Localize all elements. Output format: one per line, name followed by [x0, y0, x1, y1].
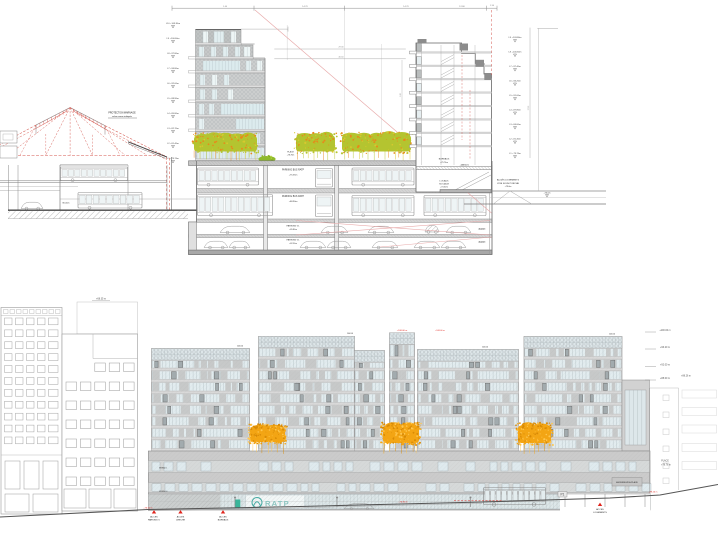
- svg-text:+78.76m: +78.76m: [287, 154, 295, 156]
- svg-text:+88.00 m: +88.00 m: [660, 377, 670, 380]
- svg-text:L8 +97.80m: L8 +97.80m: [167, 53, 179, 55]
- svg-text:2.60: 2.60: [400, 93, 402, 97]
- svg-text:+96.20 m: +96.20 m: [660, 346, 670, 349]
- svg-text:L8 +100.60m: L8 +100.60m: [509, 52, 522, 54]
- svg-text:VOIE SOUS PORCHE: VOIE SOUS PORCHE: [497, 183, 520, 185]
- svg-text:L1 +79.76m: L1 +79.76m: [509, 153, 521, 155]
- svg-text:L7 +97.40m: L7 +97.40m: [509, 66, 521, 68]
- svg-text:P1: P1: [561, 493, 565, 497]
- svg-text:L6 +94.20m: L6 +94.20m: [509, 81, 521, 83]
- svg-text:104.50: 104.50: [482, 347, 488, 349]
- svg-text:ACCES: ACCES: [177, 516, 185, 519]
- svg-text:14.70: 14.70: [302, 6, 308, 8]
- svg-text:selon norme indiquée: selon norme indiquée: [112, 115, 133, 118]
- svg-text:+92.00 m: +92.00 m: [660, 364, 670, 367]
- svg-text:PLACE: PLACE: [287, 151, 294, 154]
- svg-text:L2 +81.40m: L2 +81.40m: [167, 143, 179, 145]
- svg-text:LOCAUX: LOCAUX: [440, 180, 450, 183]
- svg-text:+73.0m: +73.0m: [505, 186, 512, 188]
- svg-text:PARKING BUS RATP: PARKING BUS RATP: [282, 195, 305, 198]
- svg-text:L2 +81.40m: L2 +81.40m: [509, 139, 521, 141]
- svg-text:L3 +82.70m: L3 +82.70m: [167, 128, 179, 130]
- svg-text:40.50: 40.50: [338, 56, 344, 58]
- svg-text:PLACE: PLACE: [661, 460, 669, 463]
- svg-text:80.00m: 80.00m: [63, 203, 70, 205]
- svg-text:PARKING V.: PARKING V.: [148, 519, 161, 522]
- svg-text:CRECHE: CRECHE: [176, 520, 186, 522]
- svg-text:+79.76m: +79.76m: [440, 162, 448, 164]
- svg-text:29.30: 29.30: [338, 47, 344, 49]
- svg-text:+88.26 m: +88.26 m: [681, 376, 691, 378]
- svg-text:12.80: 12.80: [459, 6, 465, 8]
- svg-text:L4 +87.80m: L4 +87.80m: [509, 110, 521, 112]
- svg-text:PROTECTION MARNAGE: PROTECTION MARNAGE: [108, 112, 136, 115]
- svg-text:ACCES: ACCES: [596, 508, 604, 511]
- svg-text:+68.35 m: +68.35 m: [96, 298, 106, 301]
- svg-text:PARKING BUS RATP: PARKING BUS RATP: [282, 169, 305, 172]
- svg-text:+73.30m: +73.30m: [440, 187, 448, 189]
- svg-text:L5 +88.90m: L5 +88.90m: [167, 98, 179, 100]
- svg-text:PARKING VL: PARKING VL: [287, 239, 301, 242]
- svg-text:abattre: abattre: [479, 228, 487, 231]
- svg-text:14.70: 14.70: [403, 6, 409, 8]
- svg-text:L1 +79.76m: L1 +79.76m: [167, 158, 179, 160]
- svg-text:LOGEMENTS: LOGEMENTS: [593, 512, 607, 514]
- svg-text:ASCENSEUR À PLACE: ASCENSEUR À PLACE: [616, 481, 638, 484]
- svg-text:+76.50 m: +76.50 m: [143, 507, 152, 509]
- svg-text:+108.00 m: +108.00 m: [397, 330, 408, 332]
- svg-text:+62.50m: +62.50m: [289, 243, 297, 245]
- svg-text:ACCES: ACCES: [219, 516, 227, 519]
- svg-text:+78.26 m: +78.26 m: [649, 492, 658, 494]
- svg-text:+78.76 m: +78.76 m: [661, 465, 671, 467]
- svg-text:NIVEAU 0: NIVEAU 0: [159, 490, 167, 493]
- svg-text:L7 +94.80m: L7 +94.80m: [167, 68, 179, 70]
- svg-text:ACCÈS LOGEMENTS: ACCÈS LOGEMENTS: [497, 179, 519, 182]
- svg-text:+100.00 m: +100.00 m: [659, 329, 670, 332]
- svg-text:104.50: 104.50: [237, 346, 243, 348]
- svg-text:BUREAUX: BUREAUX: [218, 519, 229, 522]
- svg-text:+73.0m: +73.0m: [544, 193, 551, 195]
- svg-text:L5 +91.00m: L5 +91.00m: [509, 95, 521, 97]
- svg-text:SOCIAUX: SOCIAUX: [439, 183, 449, 186]
- svg-text:NIVEAU 1: NIVEAU 1: [159, 467, 167, 470]
- svg-text:L3 +84.60m: L3 +84.60m: [509, 124, 521, 126]
- svg-text:abattre: abattre: [479, 241, 487, 244]
- svg-text:+68.90m: +68.90m: [289, 201, 298, 203]
- svg-text:PARKING VL: PARKING VL: [287, 225, 301, 228]
- svg-text:BUREAUX: BUREAUX: [439, 158, 450, 161]
- svg-text:L10 +103.80m: L10 +103.80m: [166, 23, 180, 25]
- svg-text:104.50: 104.50: [609, 333, 615, 335]
- svg-text:+108.00 m: +108.00 m: [435, 330, 445, 332]
- svg-text:+75.35m: +75.35m: [289, 175, 298, 177]
- svg-text:+7.60: +7.60: [460, 165, 465, 167]
- svg-text:27.35: 27.35: [528, 106, 530, 111]
- svg-text:104.50: 104.50: [347, 333, 353, 335]
- svg-text:L9 +103.80m: L9 +103.80m: [509, 37, 522, 39]
- svg-text:+76.80 m: +76.80 m: [398, 502, 407, 504]
- svg-text:ACCES: ACCES: [150, 516, 158, 519]
- svg-text:L4 +85.80m: L4 +85.80m: [167, 113, 179, 115]
- svg-text:+65.80m: +65.80m: [289, 229, 297, 231]
- svg-text:L9 +100.60m: L9 +100.60m: [167, 38, 180, 40]
- svg-text:L6 +92.00m: L6 +92.00m: [167, 83, 179, 85]
